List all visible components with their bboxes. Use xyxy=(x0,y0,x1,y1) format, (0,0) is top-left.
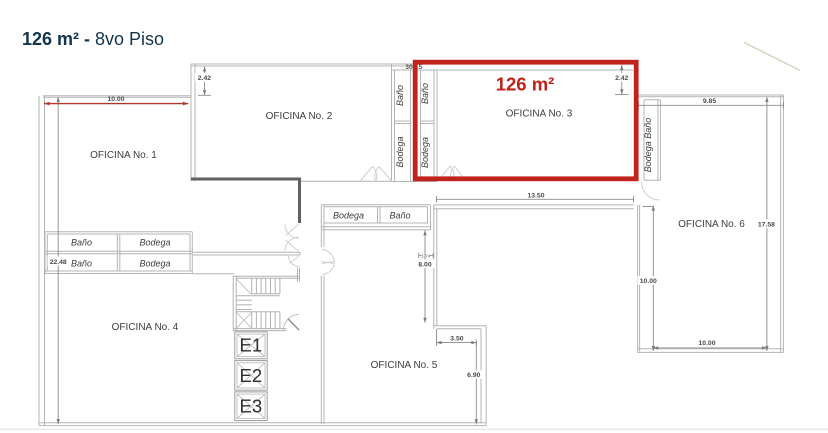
svg-text:2.42: 2.42 xyxy=(615,75,628,82)
svg-text:E3: E3 xyxy=(240,396,263,417)
svg-text:Bodega Baño: Bodega Baño xyxy=(643,118,653,173)
svg-text:Bodega: Bodega xyxy=(139,259,170,269)
svg-text:9.85: 9.85 xyxy=(703,98,716,105)
svg-text:1.74: 1.74 xyxy=(421,254,430,259)
svg-text:Baño: Baño xyxy=(395,85,405,106)
svg-text:OFICINA No. 5: OFICINA No. 5 xyxy=(371,360,438,371)
svg-text:Baño: Baño xyxy=(389,211,410,221)
svg-text:Bodega: Bodega xyxy=(333,211,364,221)
svg-text:Bodega: Bodega xyxy=(420,137,430,168)
svg-text:13.50: 13.50 xyxy=(527,192,544,199)
svg-text:E1: E1 xyxy=(240,335,263,356)
svg-text:10.00: 10.00 xyxy=(640,278,657,285)
svg-text:E2: E2 xyxy=(240,365,263,386)
svg-text:Baño: Baño xyxy=(71,238,92,248)
svg-text:3.50: 3.50 xyxy=(450,335,463,342)
svg-text:Baño: Baño xyxy=(420,83,430,104)
svg-text:Bodega: Bodega xyxy=(395,136,405,167)
svg-text:OFICINA No. 1: OFICINA No. 1 xyxy=(90,150,157,161)
svg-text:17.58: 17.58 xyxy=(758,221,775,228)
svg-text:2.42: 2.42 xyxy=(198,75,211,82)
svg-text:10.00: 10.00 xyxy=(107,96,124,103)
svg-text:OFICINA No. 4: OFICINA No. 4 xyxy=(112,322,179,333)
svg-text:22.48: 22.48 xyxy=(50,259,67,266)
svg-text:126 m² - 8vo Piso: 126 m² - 8vo Piso xyxy=(22,29,164,49)
svg-text:OFICINA No. 6: OFICINA No. 6 xyxy=(678,219,745,230)
svg-text:6.90: 6.90 xyxy=(467,372,480,379)
svg-text:Bodega: Bodega xyxy=(139,238,170,248)
svg-text:8.00: 8.00 xyxy=(418,261,431,268)
svg-text:126 m²: 126 m² xyxy=(496,74,555,95)
svg-text:OFICINA No. 3: OFICINA No. 3 xyxy=(506,108,573,119)
svg-text:10.00: 10.00 xyxy=(698,340,715,347)
svg-text:Baño: Baño xyxy=(71,259,92,269)
svg-text:OFICINA No. 2: OFICINA No. 2 xyxy=(266,111,333,122)
